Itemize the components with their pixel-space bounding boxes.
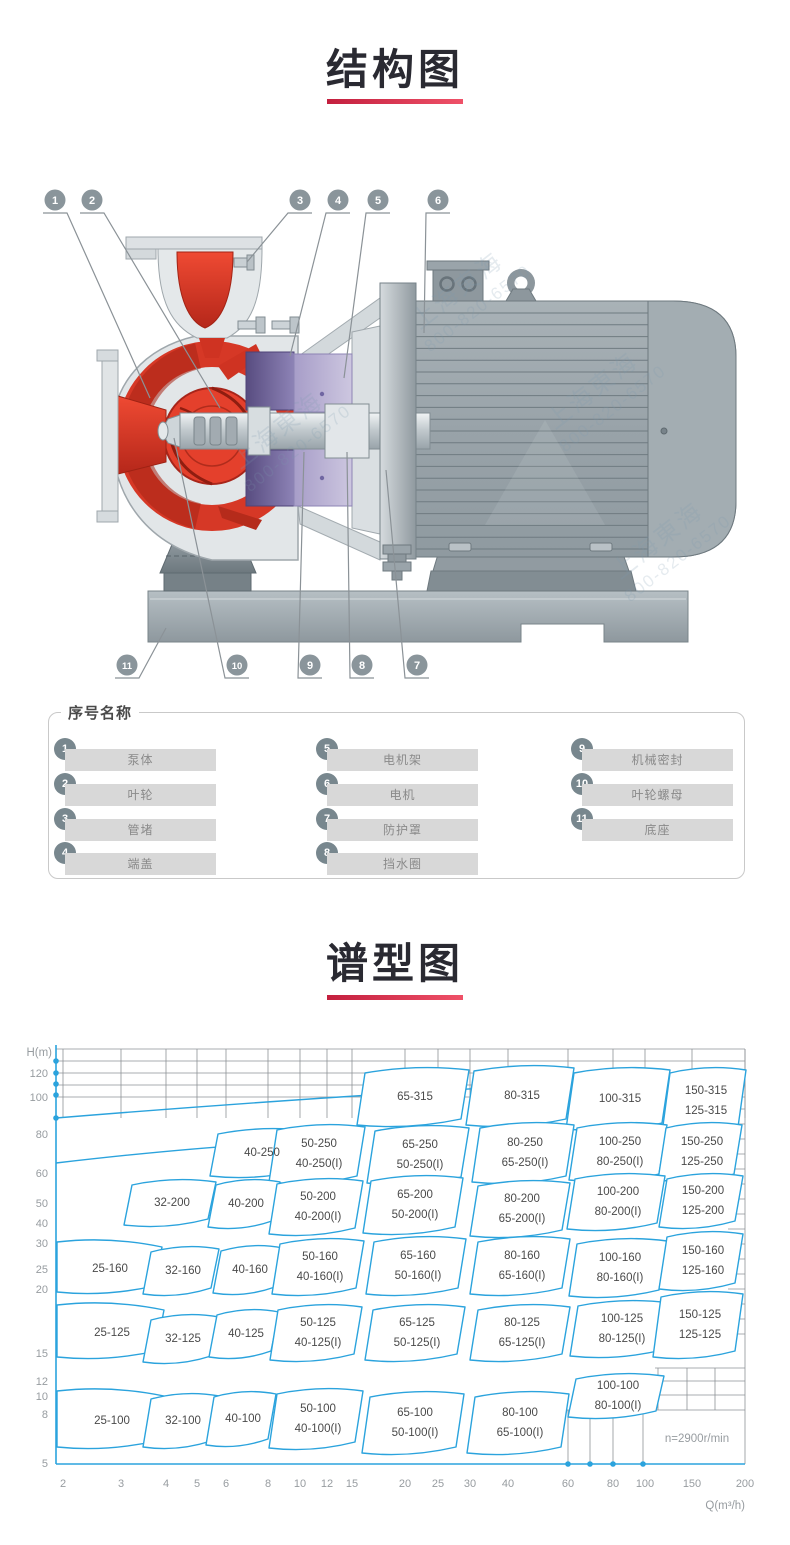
- drain-screw-icon: [661, 428, 667, 434]
- svg-text:100: 100: [636, 1478, 654, 1490]
- svg-text:65-200: 65-200: [397, 1189, 433, 1201]
- svg-text:200: 200: [736, 1478, 754, 1490]
- part-label: 挡水圈: [327, 853, 478, 875]
- svg-text:150-200: 150-200: [682, 1185, 724, 1197]
- svg-text:65-160: 65-160: [400, 1250, 436, 1262]
- svg-text:40-160(I): 40-160(I): [297, 1271, 344, 1283]
- structure-section-title: 结构图: [0, 36, 790, 97]
- svg-text:150-125: 150-125: [679, 1309, 721, 1321]
- svg-text:25: 25: [432, 1478, 444, 1490]
- svg-text:100: 100: [30, 1092, 48, 1104]
- svg-text:100-200: 100-200: [597, 1186, 639, 1198]
- part-label: 机械密封: [582, 749, 733, 771]
- svg-text:32-160: 32-160: [165, 1265, 201, 1277]
- svg-text:80-125: 80-125: [504, 1317, 540, 1329]
- svg-text:50-160(I): 50-160(I): [395, 1270, 442, 1282]
- svg-text:150-315: 150-315: [685, 1085, 727, 1097]
- svg-text:3: 3: [118, 1478, 124, 1490]
- spectrum-section-title: 谱型图: [0, 930, 790, 991]
- svg-text:80-315: 80-315: [504, 1090, 540, 1102]
- svg-text:50-125: 50-125: [300, 1317, 336, 1329]
- svg-text:25: 25: [36, 1264, 48, 1276]
- svg-text:65-160(I): 65-160(I): [499, 1270, 546, 1282]
- part-label: 防护罩: [327, 819, 478, 841]
- model-region: [272, 1239, 364, 1296]
- callout-number: 9: [307, 660, 313, 672]
- svg-text:40-200: 40-200: [228, 1198, 264, 1210]
- svg-text:50-100(I): 50-100(I): [392, 1427, 439, 1439]
- svg-text:80-200(I): 80-200(I): [595, 1206, 642, 1218]
- part-label: 叶轮螺母: [582, 784, 733, 806]
- part-label: 叶轮: [65, 784, 216, 806]
- svg-text:150: 150: [683, 1478, 701, 1490]
- callout-number: 8: [359, 660, 365, 672]
- svg-text:5: 5: [42, 1458, 48, 1470]
- svg-text:65-315: 65-315: [397, 1091, 433, 1103]
- svg-text:6: 6: [223, 1478, 229, 1490]
- callout-number: 6: [435, 195, 441, 207]
- svg-text:2: 2: [60, 1478, 66, 1490]
- svg-text:20: 20: [36, 1284, 48, 1296]
- parts-legend-title: 序号名称: [61, 702, 139, 723]
- model-region: [270, 1305, 362, 1362]
- svg-text:40-200(I): 40-200(I): [295, 1211, 342, 1223]
- svg-text:32-125: 32-125: [165, 1333, 201, 1345]
- base-plate: [148, 591, 688, 642]
- svg-text:65-200(I): 65-200(I): [499, 1213, 546, 1225]
- svg-text:8: 8: [42, 1409, 48, 1421]
- callout-number: 4: [335, 195, 342, 207]
- model-region: [362, 1392, 464, 1455]
- svg-text:32-200: 32-200: [154, 1197, 190, 1209]
- svg-text:40-250: 40-250: [244, 1147, 280, 1159]
- svg-text:32-100: 32-100: [165, 1415, 201, 1427]
- svg-text:65-125(I): 65-125(I): [499, 1337, 546, 1349]
- callout-number: 11: [122, 661, 133, 672]
- svg-text:40: 40: [502, 1478, 514, 1490]
- model-region: [567, 1174, 665, 1231]
- svg-text:25-100: 25-100: [94, 1415, 130, 1427]
- svg-text:40-125(I): 40-125(I): [295, 1337, 342, 1349]
- callout-number: 10: [232, 661, 243, 672]
- model-region: [269, 1179, 363, 1236]
- svg-text:50: 50: [36, 1198, 48, 1210]
- svg-text:80-100: 80-100: [502, 1407, 538, 1419]
- svg-text:30: 30: [464, 1478, 476, 1490]
- svg-text:120: 120: [30, 1068, 48, 1080]
- model-region: [653, 1292, 743, 1359]
- svg-text:40-100(I): 40-100(I): [295, 1423, 342, 1435]
- callout-number: 7: [414, 660, 420, 672]
- pump-selection-chart: 65-31580-315100-315150-315125-31540-2505…: [0, 1030, 790, 1545]
- callout-number: 5: [375, 195, 381, 207]
- speed-annotation: n=2900r/min: [665, 1433, 729, 1445]
- model-region: [467, 1392, 569, 1455]
- svg-text:100-100: 100-100: [597, 1380, 639, 1392]
- model-region: [470, 1237, 570, 1296]
- svg-text:125-250: 125-250: [681, 1156, 723, 1168]
- svg-text:30: 30: [36, 1238, 48, 1250]
- svg-text:40-250(I): 40-250(I): [296, 1158, 343, 1170]
- part-label: 端盖: [65, 853, 216, 875]
- svg-text:80-160(I): 80-160(I): [597, 1272, 644, 1284]
- svg-text:65-100(I): 65-100(I): [497, 1427, 544, 1439]
- svg-text:50-200(I): 50-200(I): [392, 1209, 439, 1221]
- svg-text:65-250(I): 65-250(I): [502, 1157, 549, 1169]
- part-label: 电机: [327, 784, 478, 806]
- svg-text:40-125: 40-125: [228, 1328, 264, 1340]
- svg-text:60: 60: [36, 1168, 48, 1180]
- model-region: [365, 1305, 465, 1362]
- svg-text:125-200: 125-200: [682, 1205, 724, 1217]
- svg-text:5: 5: [194, 1478, 200, 1490]
- pump-structure-diagram: 上海東海800-820-6570上海東海800-820-6570上海東海800-…: [0, 170, 790, 690]
- svg-text:40-100: 40-100: [225, 1413, 261, 1425]
- svg-text:50-250(I): 50-250(I): [397, 1159, 444, 1171]
- svg-text:25-125: 25-125: [94, 1327, 130, 1339]
- part-label: 底座: [582, 819, 733, 841]
- svg-text:12: 12: [36, 1376, 48, 1388]
- svg-text:15: 15: [36, 1348, 48, 1360]
- svg-text:50-100: 50-100: [300, 1403, 336, 1415]
- svg-text:50-200: 50-200: [300, 1191, 336, 1203]
- svg-text:65-100: 65-100: [397, 1407, 433, 1419]
- model-region: [472, 1123, 574, 1184]
- callout-number: 2: [89, 195, 95, 207]
- part-label: 泵体: [65, 749, 216, 771]
- svg-text:65-250: 65-250: [402, 1139, 438, 1151]
- svg-text:100-250: 100-250: [599, 1136, 641, 1148]
- svg-text:125-160: 125-160: [682, 1265, 724, 1277]
- svg-text:80-200: 80-200: [504, 1193, 540, 1205]
- motor-flange: [380, 283, 416, 580]
- page: 结构图: [0, 0, 790, 1545]
- svg-text:15: 15: [346, 1478, 358, 1490]
- model-region: [470, 1305, 570, 1362]
- svg-text:80-125(I): 80-125(I): [599, 1333, 646, 1345]
- svg-text:80-100(I): 80-100(I): [595, 1400, 642, 1412]
- model-region: [569, 1239, 667, 1298]
- callout-number: 3: [297, 195, 303, 207]
- svg-text:100-125: 100-125: [601, 1313, 643, 1325]
- model-region: [269, 1389, 363, 1450]
- svg-text:10: 10: [36, 1391, 48, 1403]
- svg-text:80-250: 80-250: [507, 1137, 543, 1149]
- svg-text:50-250: 50-250: [301, 1138, 337, 1150]
- model-region: [363, 1176, 463, 1235]
- svg-text:60: 60: [562, 1478, 574, 1490]
- svg-text:50-160: 50-160: [302, 1251, 338, 1263]
- svg-text:80: 80: [36, 1129, 48, 1141]
- svg-text:50-125(I): 50-125(I): [394, 1337, 441, 1349]
- svg-text:8: 8: [265, 1478, 271, 1490]
- svg-text:40: 40: [36, 1218, 48, 1230]
- svg-text:100-315: 100-315: [599, 1093, 641, 1105]
- model-region: [658, 1123, 742, 1182]
- part-label: 电机架: [327, 749, 478, 771]
- svg-text:125-315: 125-315: [685, 1105, 727, 1117]
- svg-text:100-160: 100-160: [599, 1252, 641, 1264]
- svg-text:125-125: 125-125: [679, 1329, 721, 1341]
- svg-text:40-160: 40-160: [232, 1264, 268, 1276]
- title-underline-bar: [327, 995, 463, 1000]
- svg-text:150-250: 150-250: [681, 1136, 723, 1148]
- svg-text:10: 10: [294, 1478, 306, 1490]
- svg-text:20: 20: [399, 1478, 411, 1490]
- part-label: 管堵: [65, 819, 216, 841]
- svg-text:25-160: 25-160: [92, 1263, 128, 1275]
- svg-text:12: 12: [321, 1478, 333, 1490]
- svg-text:80-250(I): 80-250(I): [597, 1156, 644, 1168]
- svg-text:4: 4: [163, 1478, 169, 1490]
- model-region: [269, 1125, 365, 1184]
- model-region: [659, 1232, 743, 1291]
- svg-text:80: 80: [607, 1478, 619, 1490]
- parts-legend-panel: 序号名称 1泵体2叶轮3管堵4端盖5电机架6电机7防护罩8挡水圈9机械密封10叶…: [48, 712, 745, 879]
- model-region: [470, 1181, 570, 1238]
- model-region: [569, 1123, 667, 1182]
- svg-text:150-160: 150-160: [682, 1245, 724, 1257]
- model-region: [366, 1237, 466, 1296]
- x-axis-title: Q(m³/h): [705, 1500, 745, 1512]
- svg-text:65-125: 65-125: [399, 1317, 435, 1329]
- callout-number: 1: [52, 195, 58, 207]
- svg-text:80-160: 80-160: [504, 1250, 540, 1262]
- model-region: [659, 1174, 743, 1229]
- title-underline-bar: [327, 99, 463, 104]
- y-axis-title: H(m): [26, 1047, 52, 1059]
